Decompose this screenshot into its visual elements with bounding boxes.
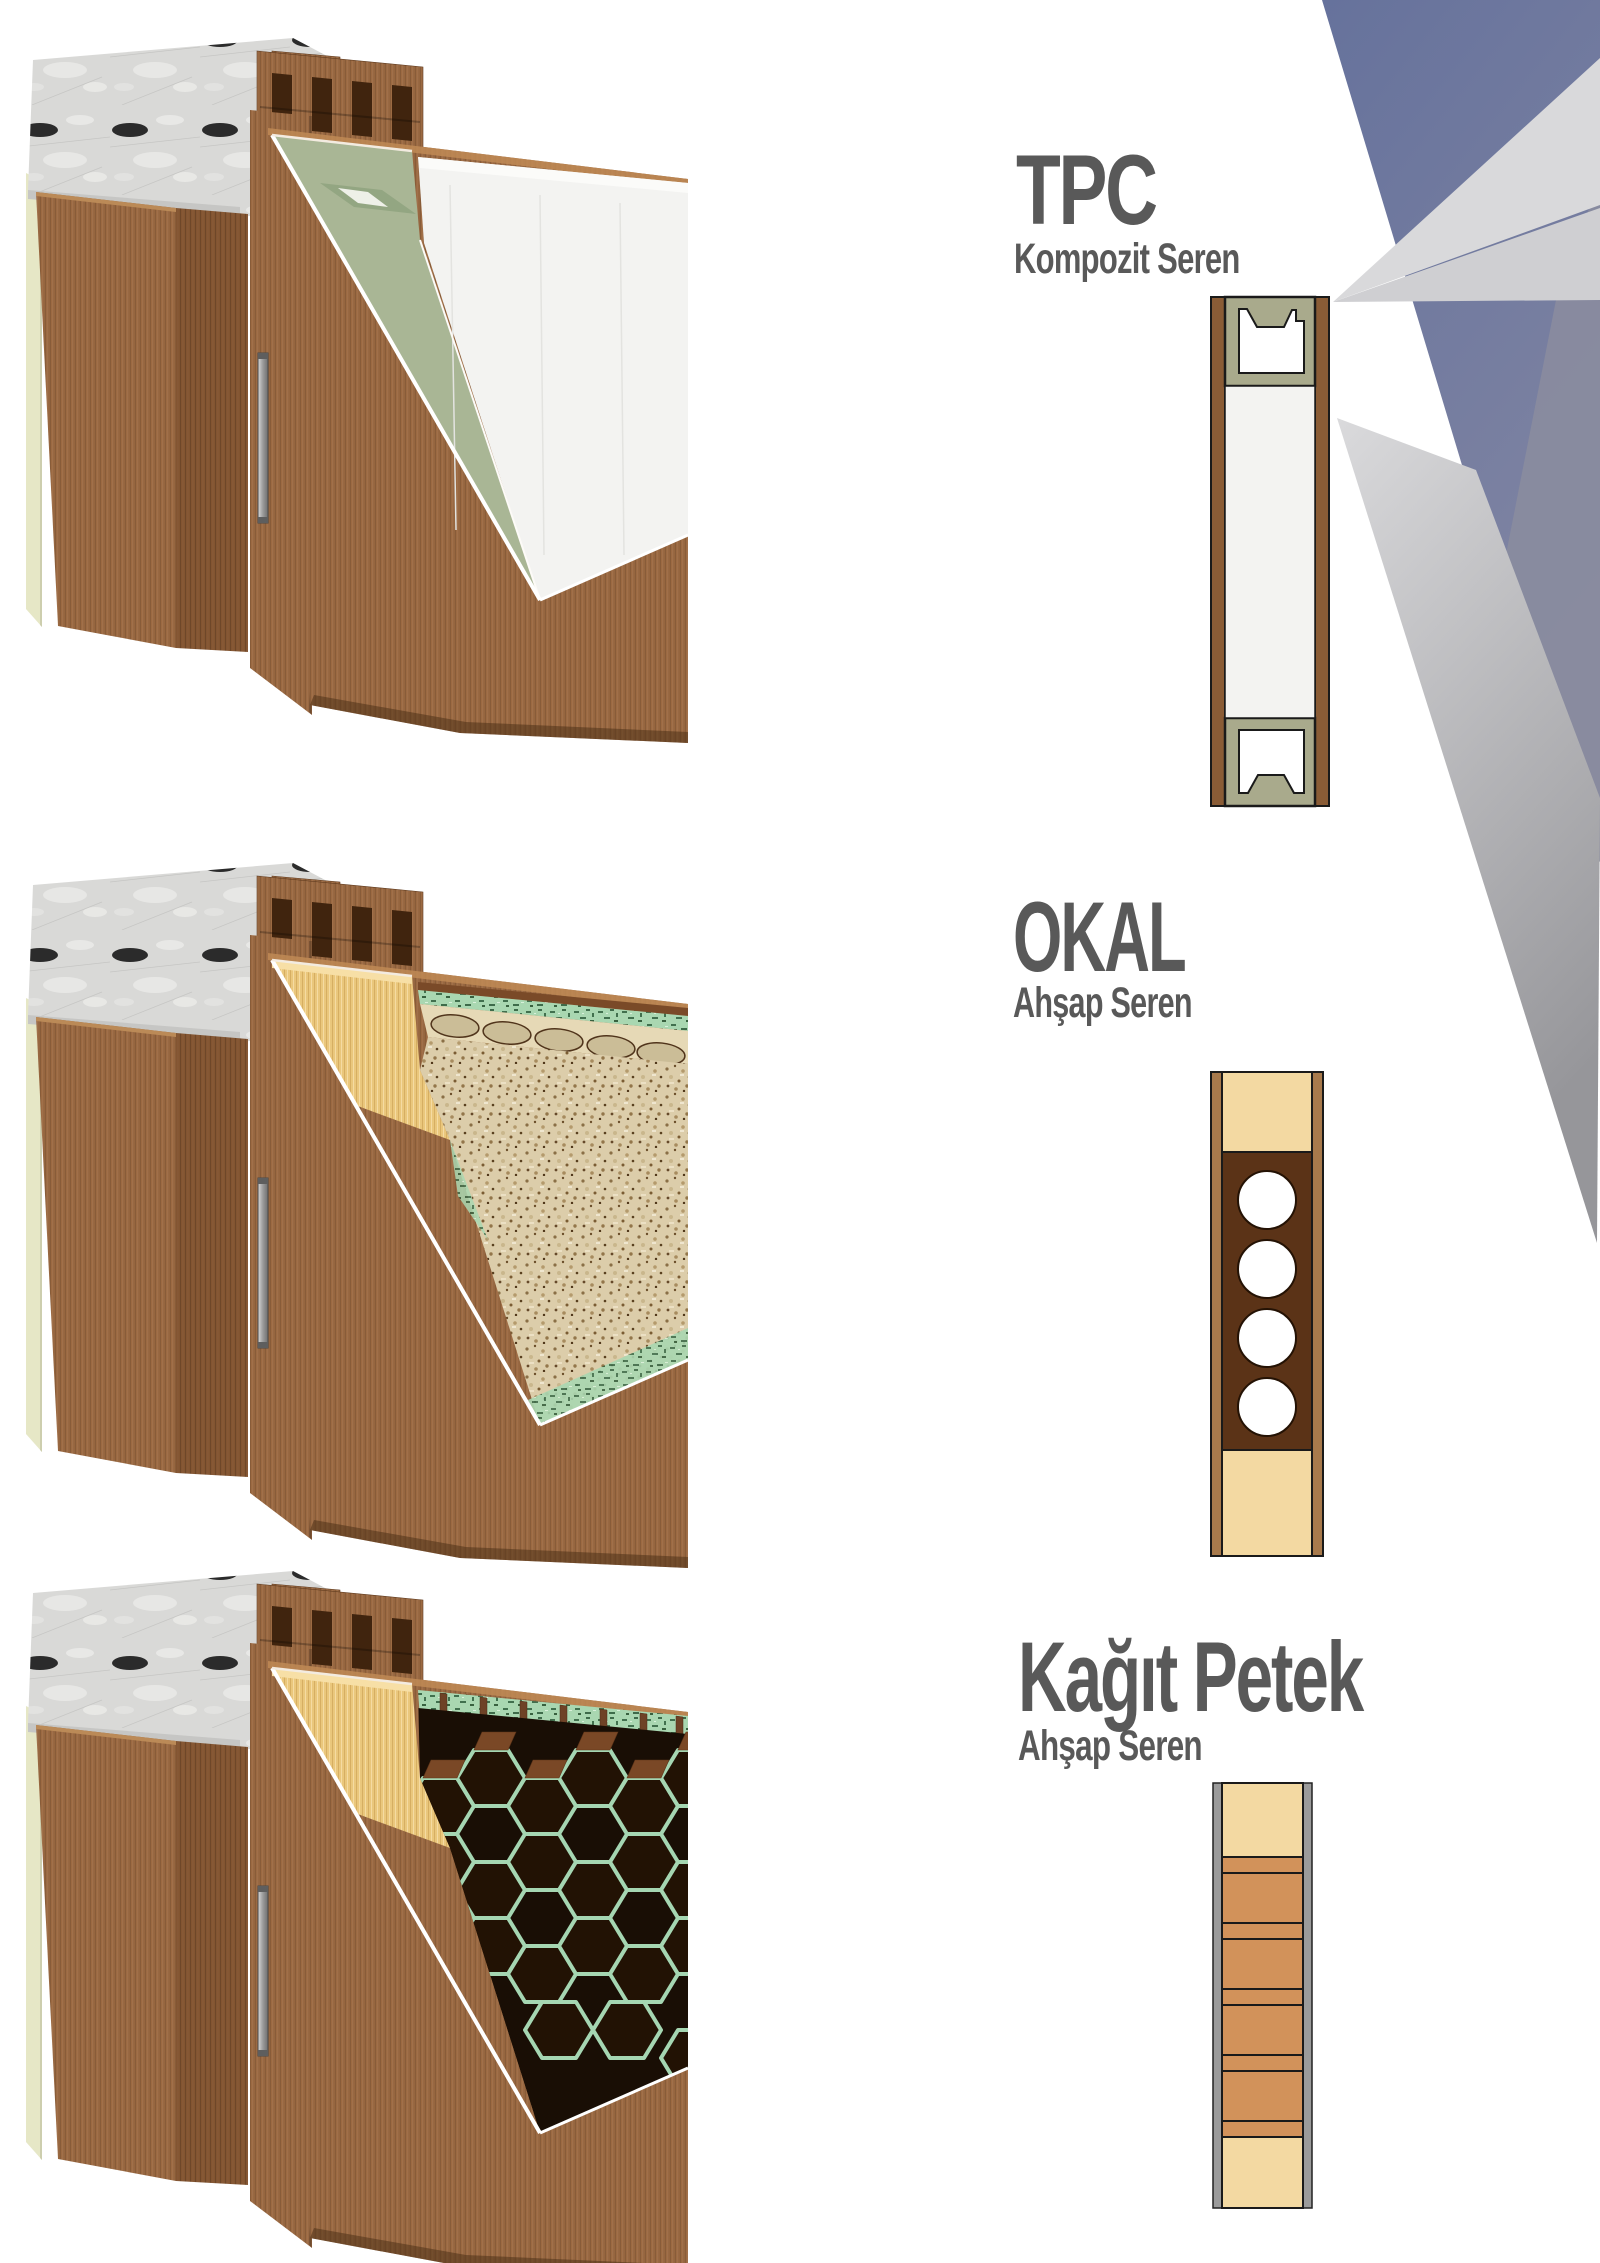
- section-subtitle-okal: Ahşap Seren: [1013, 984, 1192, 1023]
- door-render-kagit-petek: [20, 1548, 690, 2263]
- schematic-kagit-petek-cross-section: [1207, 1777, 1319, 2214]
- schematic-okal-cross-section: [1205, 1066, 1330, 1562]
- door-render-tpc: [20, 15, 690, 745]
- section-subtitle-kagit-petek: Ahşap Seren: [1018, 1727, 1202, 1766]
- section-subtitle-tpc: Kompozit Seren: [1014, 240, 1240, 279]
- schematic-tpc-cross-section: [1205, 292, 1335, 812]
- section-title-okal: OKAL: [1013, 897, 1185, 976]
- catalog-page: TPC Kompozit Seren OKAL Ahşap Seren Kağı…: [0, 0, 1600, 2263]
- section-title-kagit-petek: Kağıt Petek: [1018, 1637, 1362, 1716]
- door-render-okal: [20, 840, 690, 1570]
- section-title-tpc: TPC: [1016, 150, 1156, 229]
